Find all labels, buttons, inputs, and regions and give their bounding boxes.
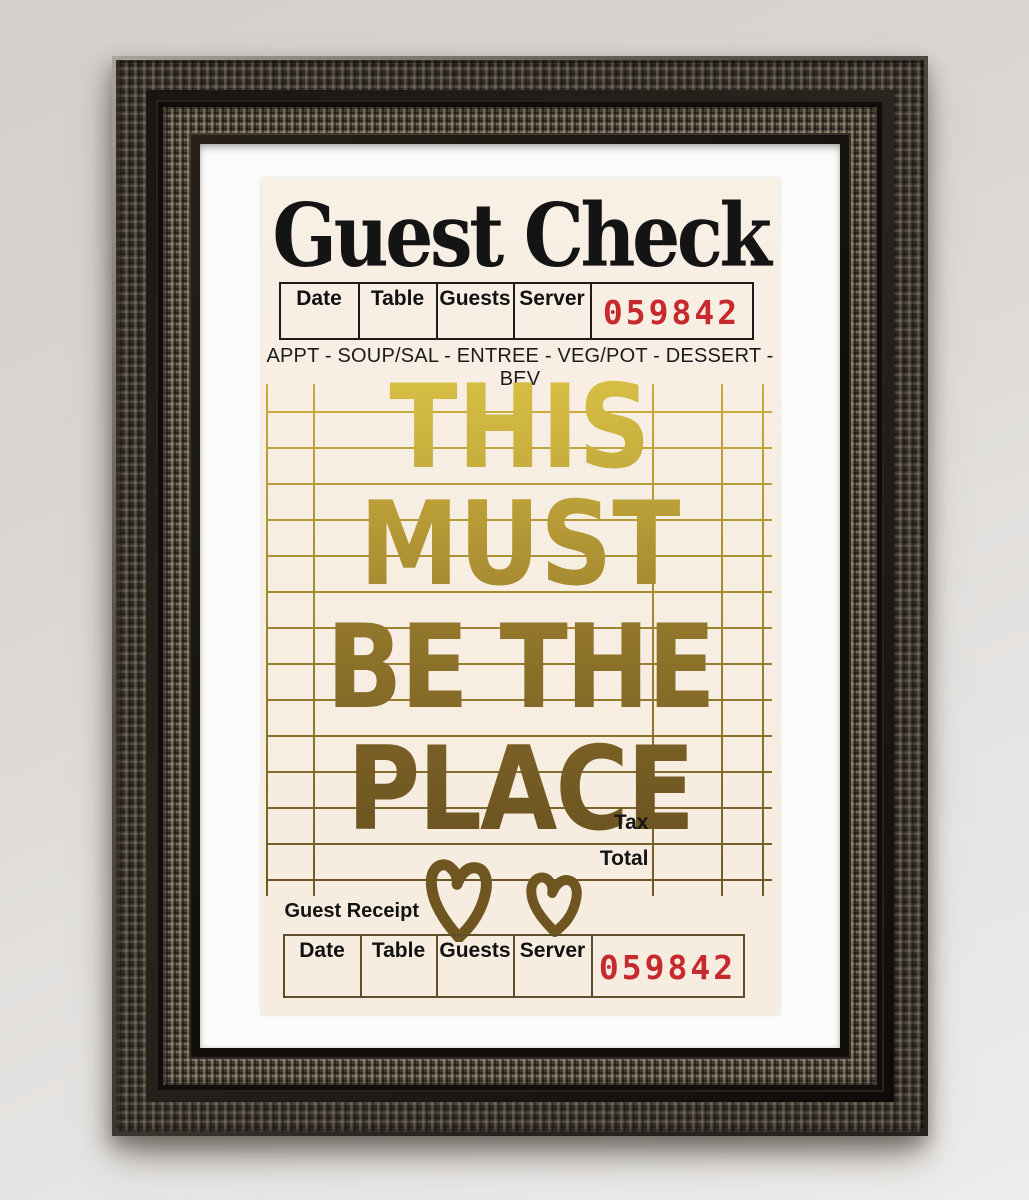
receipt-table: Date Table Guests Server 059842: [283, 934, 745, 998]
frame-inner-lip: Guest Check Date Table Guests Server 059…: [189, 133, 851, 1059]
header-cell-table: Table: [360, 284, 438, 338]
message-line-4: PLACE: [261, 726, 780, 854]
heart-icon-small: [525, 868, 583, 938]
receipt-label: Guest Receipt: [285, 900, 419, 923]
receipt-cell-date: Date: [285, 936, 362, 996]
message-line-2: MUST: [261, 481, 780, 609]
tax-label: Tax: [614, 811, 649, 835]
receipt-cell-table: Table: [362, 936, 438, 996]
wall: Guest Check Date Table Guests Server 059…: [0, 0, 1029, 1200]
heart-icon-large: [421, 854, 495, 942]
frame-dark-step: Guest Check Date Table Guests Server 059…: [146, 90, 894, 1102]
total-label: Total: [600, 847, 649, 871]
header-cell-guests: Guests: [438, 284, 515, 338]
poster-title: Guest Check: [268, 190, 771, 284]
header-cell-date: Date: [281, 284, 360, 338]
frame-dark-lip: Guest Check Date Table Guests Server 059…: [156, 100, 884, 1092]
picture-frame: Guest Check Date Table Guests Server 059…: [112, 56, 928, 1136]
header-cell-server: Server: [515, 284, 592, 338]
check-number: 059842: [592, 284, 752, 338]
header-table: Date Table Guests Server 059842: [279, 282, 754, 340]
message-line-1: THIS: [261, 364, 780, 492]
guest-check-poster: Guest Check Date Table Guests Server 059…: [261, 178, 780, 1015]
receipt-cell-server: Server: [515, 936, 593, 996]
receipt-cell-guests: Guests: [438, 936, 515, 996]
receipt-number: 059842: [593, 936, 743, 996]
frame-inner-band: Guest Check Date Table Guests Server 059…: [163, 107, 877, 1085]
mat-board: Guest Check Date Table Guests Server 059…: [200, 144, 840, 1048]
grid-hline: [266, 879, 772, 881]
message-line-3: BE THE: [261, 604, 780, 732]
frame-outer-band: Guest Check Date Table Guests Server 059…: [116, 60, 924, 1132]
